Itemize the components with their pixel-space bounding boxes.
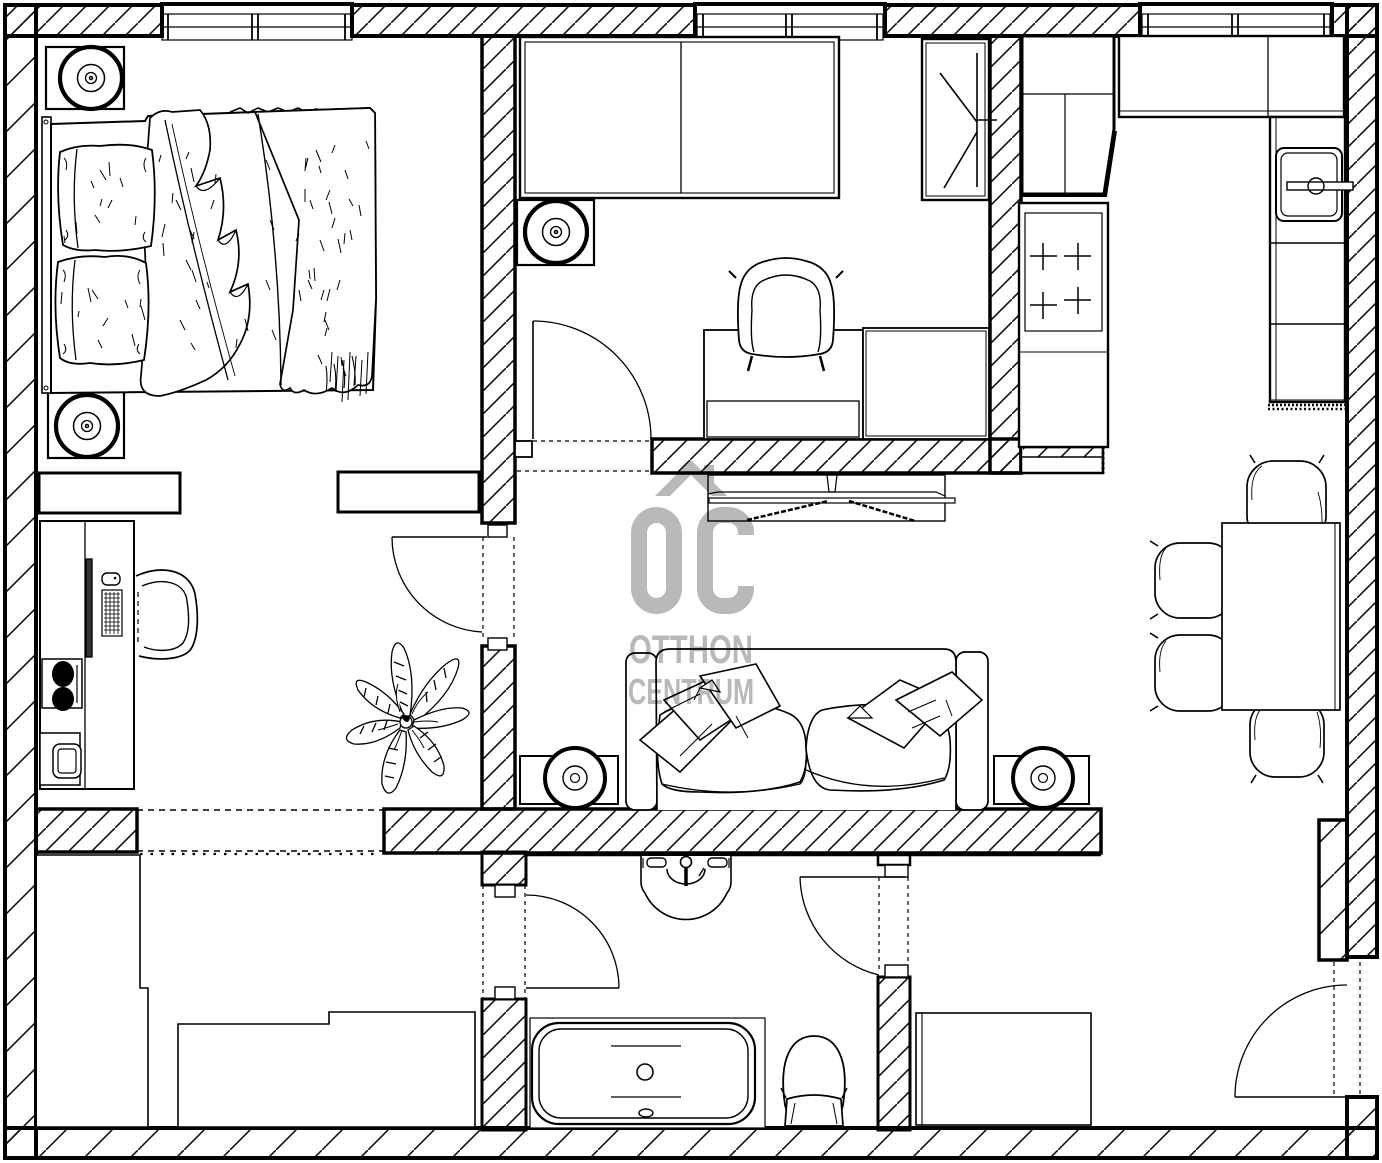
svg-text:CENTRUM: CENTRUM bbox=[628, 671, 754, 712]
svg-text:OTTHON: OTTHON bbox=[629, 628, 753, 672]
